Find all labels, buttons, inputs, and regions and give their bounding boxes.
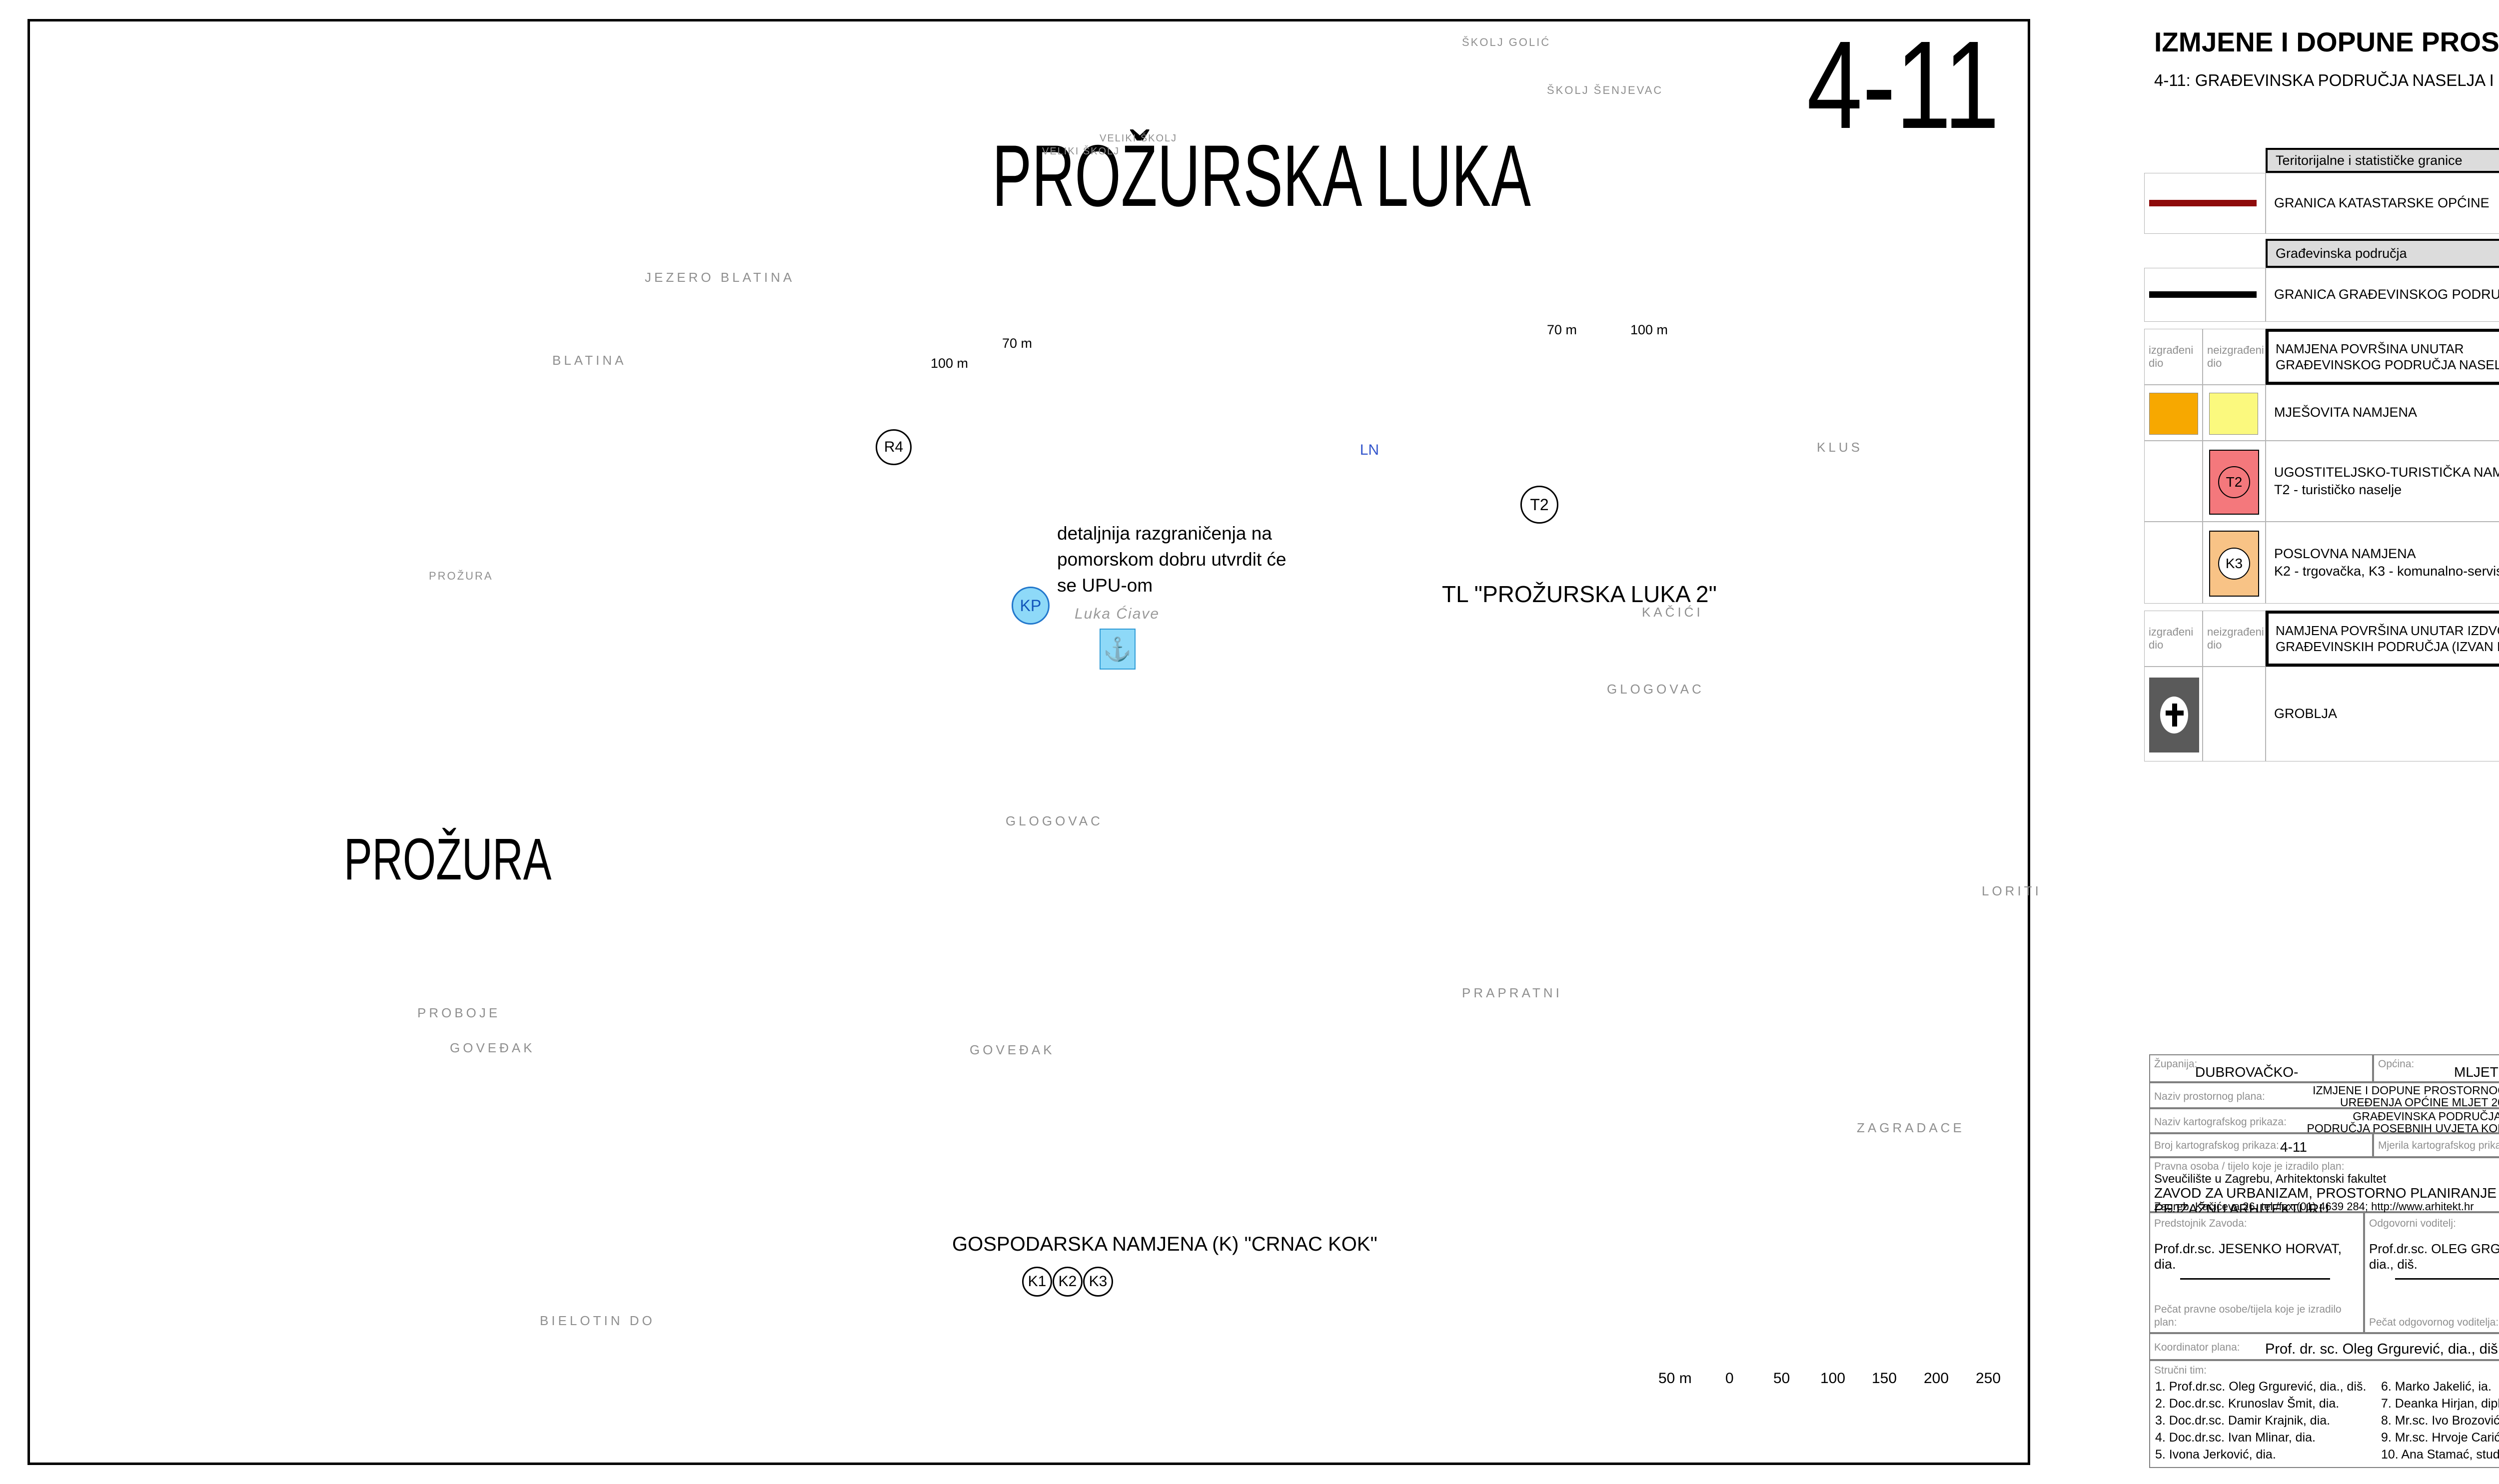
- cell-naziv-plana: Naziv prostornog plana: IZMJENE I DOPUNE…: [2149, 1082, 2499, 1108]
- legend-header-gradevinska-label: Građevinska područja: [2276, 246, 2407, 261]
- voditelj-label: Odgovorni voditelj:: [2369, 1217, 2456, 1230]
- dist-70m-west: 70 m: [1002, 336, 1032, 351]
- legend-item-groblja: GROBLJA: [2266, 667, 2499, 761]
- legend-header-territorial: Teritorijalne i statističke granice: [2266, 148, 2499, 173]
- dist-100m-west: 100 m: [931, 356, 968, 371]
- anchor-symbol-map: ⚓: [1100, 629, 1136, 670]
- col-header-built: izgrađeni dio: [2144, 329, 2203, 385]
- k1-badge-map: K1: [1022, 1267, 1052, 1297]
- label-skolj-golic: ŠKOLJ GOLIĆ: [1462, 36, 1550, 49]
- t2-badge-label: T2: [1530, 496, 1548, 514]
- label-prozura-small: PROŽURA: [429, 570, 493, 583]
- legend-header-namjena-izdvojenih: NAMJENA POVRŠINA UNUTAR IZDVOJENIH GRAĐE…: [2266, 611, 2499, 667]
- kp-badge-label: KP: [1020, 597, 1042, 615]
- label-prapratni: PRAPRATNI: [1462, 985, 1562, 1001]
- voditelj-value: Prof.dr.sc. OLEG GRGUREVIĆ, dia., diš.: [2369, 1241, 2499, 1272]
- cell-predstojnik: Predstojnik Zavoda: Prof.dr.sc. JESENKO …: [2149, 1212, 2364, 1333]
- mjesovita-label: MJEŠOVITA NAMJENA: [2274, 404, 2499, 421]
- cell-broj: Broj kartografskog prikaza: 4-11: [2149, 1133, 2373, 1157]
- broj-value: 4-11: [2280, 1139, 2307, 1155]
- t2-badge-map: T2: [1520, 486, 1558, 524]
- label-skolj-senjevac: ŠKOLJ ŠENJEVAC: [1547, 84, 1663, 97]
- legend-cell: [2144, 522, 2203, 604]
- legend-cell: [2144, 441, 2203, 522]
- tim-member: 6. Marko Jakelić, ia.: [2381, 1378, 2499, 1395]
- naziv-pr-value: GRAĐEVINSKA PODRUČJA I PODRUČJA POSEBNIH…: [2300, 1110, 2499, 1134]
- k3-badge-legend: K3: [2218, 548, 2250, 580]
- label-luka-ciave: Luka Ćiave: [1075, 606, 1160, 623]
- dist-100m-east: 100 m: [1630, 322, 1668, 338]
- pravna-line1: Sveučilište u Zagrebu, Arhitektonski fak…: [2154, 1172, 2386, 1186]
- koordinator-value: Prof. dr. sc. Oleg Grgurević, dia., diš.: [2265, 1341, 2499, 1358]
- legend-header-territorial-label: Teritorijalne i statističke granice: [2276, 153, 2463, 168]
- opcina-label: Općina:: [2378, 1058, 2414, 1071]
- label-glogovac-1: GLOGOVAC: [1006, 813, 1103, 829]
- legend-cell: [2203, 667, 2266, 761]
- cell-opcina: Općina: MLJET: [2373, 1054, 2499, 1082]
- map-title-prozura: PROŽURA: [344, 825, 551, 893]
- cell-koordinator: Koordinator plana: Prof. dr. sc. Oleg Gr…: [2149, 1333, 2499, 1360]
- scale-tick-50: 50: [1773, 1370, 1790, 1387]
- label-veliki-skolj-2: VELIKI ŠKOLJ: [1100, 133, 1177, 144]
- k2-badge-map: K2: [1053, 1267, 1083, 1297]
- legend-header-gradevinska: Građevinska područja: [2266, 239, 2499, 268]
- tim-member: 2. Doc.dr.sc. Krunoslav Šmit, dia.: [2155, 1395, 2366, 1412]
- k2-badge-label: K2: [1059, 1273, 1077, 1290]
- predstojnik-label: Predstojnik Zavoda:: [2154, 1217, 2247, 1230]
- pravna-label: Pravna osoba / tijelo koje je izradilo p…: [2154, 1160, 2345, 1173]
- signature-line: [2395, 1278, 2499, 1280]
- sheet-number: 4-11: [1807, 13, 1999, 156]
- cell-zupanija: Županija: DUBROVAČKO-NERETVANSKA: [2149, 1054, 2373, 1082]
- broj-label: Broj kartografskog prikaza:: [2154, 1139, 2279, 1152]
- cemetery-swatch: [2149, 678, 2199, 752]
- r4-badge-map: R4: [876, 429, 912, 465]
- label-proboje: PROBOJE: [417, 1005, 500, 1021]
- mixed-built-swatch: [2149, 393, 2198, 435]
- pravna-line3: Zagreb, Kačićeva 26, tel./fax.(01) 4639 …: [2154, 1200, 2474, 1213]
- pecat-voditelja-label: Pečat odgovornog voditelja:: [2369, 1316, 2499, 1329]
- r4-badge-label: R4: [884, 439, 903, 456]
- tourist-swatch: T2: [2209, 450, 2259, 515]
- tim-member: 3. Doc.dr.sc. Damir Krajnik, dia.: [2155, 1412, 2366, 1429]
- naziv-plana-label: Naziv prostornog plana:: [2154, 1090, 2265, 1103]
- cemetery-ellipse: [2160, 697, 2188, 734]
- cell-tim: Stručni tim: 1. Prof.dr.sc. Oleg Grgurev…: [2149, 1360, 2499, 1468]
- col-built-label-2: izgrađeni dio: [2149, 626, 2193, 652]
- cell-naziv-prikaza: Naziv kartografskog prikaza: GRAĐEVINSKA…: [2149, 1108, 2499, 1133]
- k3-badge-label: K3: [1089, 1273, 1108, 1290]
- tim-member: 5. Ivona Jerković, dia.: [2155, 1446, 2366, 1463]
- page-title: IZMJENE I DOPUNE PROSTORNOG PLANA UREĐEN…: [2154, 26, 2499, 58]
- scale-tick-150: 150: [1872, 1370, 1897, 1387]
- cell-voditelj: Odgovorni voditelj: Prof.dr.sc. OLEG GRG…: [2364, 1212, 2499, 1333]
- granica-gp-label: GRANICA GRAĐEVINSKOG PODRUČJA: [2274, 286, 2499, 303]
- k1-badge-label: K1: [1028, 1273, 1047, 1290]
- label-govedak-1: GOVEĐAK: [450, 1040, 535, 1056]
- legend-header-namjena-naselja: NAMJENA POVRŠINA UNUTAR GRAĐEVINSKOG POD…: [2266, 329, 2499, 385]
- groblja-label: GROBLJA: [2274, 705, 2499, 723]
- label-klus: KLUS: [1817, 440, 1863, 455]
- col-header-built-2: izgrađeni dio: [2144, 611, 2203, 667]
- turisticka-label: UGOSTITELJSKO-TURISTIČKA NAMJENA ("TL") …: [2274, 464, 2499, 499]
- upu-note-text: detaljnija razgraničenja na pomorskom do…: [1057, 521, 1286, 598]
- label-zagradace: ZAGRADACE: [1857, 1120, 1965, 1136]
- tim-member: 7. Deanka Hirjan, dipl.jur.: [2381, 1395, 2499, 1412]
- legend-item-mjesovita: MJEŠOVITA NAMJENA: [2266, 385, 2499, 441]
- tim-label: Stručni tim:: [2154, 1364, 2207, 1377]
- naziv-pr-label: Naziv kartografskog prikaza:: [2154, 1116, 2287, 1129]
- koordinator-label: Koordinator plana:: [2154, 1341, 2240, 1354]
- map-title-prozurska-luka: PROŽURSKA LUKA: [992, 126, 1531, 226]
- label-veliki-skolj-1: VELIKI ŠKOLJ: [1042, 146, 1120, 157]
- tim-member: 9. Mr.sc. Hrvoje Carić, dipl.oecc.: [2381, 1429, 2499, 1446]
- label-govedak-2: GOVEĐAK: [970, 1042, 1055, 1058]
- tim-col2: 6. Marko Jakelić, ia. 7. Deanka Hirjan, …: [2381, 1378, 2499, 1463]
- tim-col1: 1. Prof.dr.sc. Oleg Grgurević, dia., diš…: [2155, 1378, 2366, 1463]
- label-bielotin-do: BIELOTIN DO: [540, 1313, 655, 1329]
- namjena-izdvojenih-label: NAMJENA POVRŠINA UNUTAR IZDVOJENIH GRAĐE…: [2276, 623, 2499, 655]
- page-subtitle: 4-11: GRAĐEVINSKA PODRUČJA NASELJA I POD…: [2154, 71, 2499, 90]
- signature-line: [2180, 1278, 2330, 1280]
- cadastral-line-swatch: [2149, 200, 2257, 206]
- legend-item-granica-ko: GRANICA KATASTARSKE OPĆINE: [2266, 173, 2499, 234]
- pecat-pravne-label: Pečat pravne osobe/tijela koje je izradi…: [2154, 1303, 2363, 1330]
- cemetery-cross-h: [2166, 711, 2184, 716]
- tim-member: 4. Doc.dr.sc. Ivan Mlinar, dia.: [2155, 1429, 2366, 1446]
- cell-mjerila: Mjerila kartografskog prikaza: 1 : 5 000: [2373, 1133, 2499, 1157]
- legend-item-granica-gp: GRANICA GRAĐEVINSKOG PODRUČJA: [2266, 268, 2499, 322]
- scale-tick-50m: 50 m: [1658, 1370, 1692, 1387]
- label-glogovac-2: GLOGOVAC: [1607, 682, 1704, 697]
- kp-badge-map: KP: [1012, 587, 1050, 625]
- tl-zone-label: TL "PROŽURSKA LUKA 2": [1442, 581, 1717, 608]
- cell-pravna-osoba: Pravna osoba / tijelo koje je izradilo p…: [2149, 1157, 2499, 1212]
- label-loriti: LORITI: [1982, 883, 2042, 899]
- scale-tick-250: 250: [1976, 1370, 2001, 1387]
- label-jezero-blatina: JEZERO BLATINA: [645, 270, 795, 285]
- t2-badge-legend: T2: [2218, 466, 2250, 498]
- col-header-unbuilt: neizgrađeni dio: [2203, 329, 2266, 385]
- scale-tick-0: 0: [1725, 1370, 1734, 1387]
- tim-member: 1. Prof.dr.sc. Oleg Grgurević, dia., diš…: [2155, 1378, 2366, 1395]
- col-header-unbuilt-2: neizgrađeni dio: [2203, 611, 2266, 667]
- namjena-naselja-label: NAMJENA POVRŠINA UNUTAR GRAĐEVINSKOG POD…: [2276, 341, 2499, 373]
- dist-70m-east: 70 m: [1547, 322, 1577, 338]
- opcina-value: MLJET: [2454, 1064, 2499, 1080]
- k3-badge-map: K3: [1083, 1267, 1113, 1297]
- mjerila-label: Mjerila kartografskog prikaza:: [2378, 1139, 2499, 1152]
- col-unbuilt-label: neizgrađeni dio: [2207, 344, 2264, 370]
- business-swatch: K3: [2209, 531, 2259, 597]
- gp-line-swatch: [2149, 291, 2257, 298]
- naziv-plana-value: IZMJENE I DOPUNE PROSTORNOG PLANA UREĐEN…: [2300, 1084, 2499, 1108]
- predstojnik-value: Prof.dr.sc. JESENKO HORVAT, dia.: [2154, 1241, 2363, 1272]
- zupanija-label: Županija:: [2154, 1058, 2197, 1071]
- gospodarska-label: GOSPODARSKA NAMJENA (K) "CRNAC KOK": [952, 1233, 1377, 1256]
- col-unbuilt-label-2: neizgrađeni dio: [2207, 626, 2264, 652]
- granica-ko-label: GRANICA KATASTARSKE OPĆINE: [2274, 194, 2499, 212]
- scale-tick-200: 200: [1924, 1370, 1949, 1387]
- plan-sheet-page: { "title_block": { "title": "IZMJENE I D…: [0, 0, 2499, 1484]
- poslovna-label: POSLOVNA NAMJENA K2 - trgovačka, K3 - ko…: [2274, 545, 2499, 580]
- tim-member: 10. Ana Stamać, stud.arh.: [2381, 1446, 2499, 1463]
- tim-member: 8. Mr.sc. Ivo Brozović, d.i.prometa: [2381, 1412, 2499, 1429]
- label-blatina: BLATINA: [552, 353, 626, 368]
- scale-tick-100: 100: [1820, 1370, 1845, 1387]
- legend-item-turisticka: UGOSTITELJSKO-TURISTIČKA NAMJENA ("TL") …: [2266, 441, 2499, 522]
- ln-badge-map: LN: [1349, 434, 1389, 467]
- legend-item-poslovna: POSLOVNA NAMJENA K2 - trgovačka, K3 - ko…: [2266, 522, 2499, 604]
- mixed-unbuilt-swatch: [2209, 393, 2258, 435]
- col-built-label: izgrađeni dio: [2149, 344, 2193, 370]
